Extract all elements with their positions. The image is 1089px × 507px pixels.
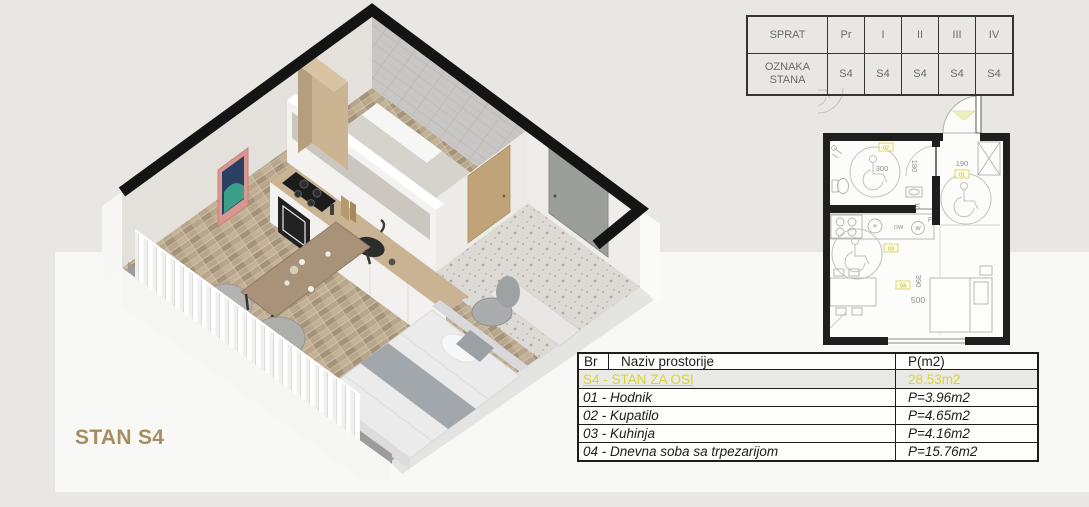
unit-cell: S4 — [975, 53, 1012, 94]
room-row: 01 - Hodnik P=3.96m2 — [579, 388, 1037, 406]
floor-col: II — [901, 17, 938, 53]
render-caption: STAN S4 — [75, 426, 164, 450]
areas-header-row: Br Naziv prostorije P(m2) — [579, 354, 1037, 369]
floor-col: I — [864, 17, 901, 53]
apartment-total-row: S4 - STAN ZA OSI 28.53m2 — [579, 369, 1037, 388]
svg-text:390: 390 — [914, 275, 923, 288]
svg-text:180: 180 — [910, 160, 919, 173]
room-area: P=15.76m2 — [895, 443, 1037, 460]
svg-text:10: 10 — [913, 202, 920, 210]
unit-cell: S4 — [864, 53, 901, 94]
room-row: 02 - Kupatilo P=4.65m2 — [579, 406, 1037, 424]
plan-entrance-door — [943, 95, 981, 133]
svg-text:300: 300 — [876, 164, 889, 173]
svg-text:01: 01 — [959, 173, 965, 179]
col-br: Br — [583, 354, 609, 369]
fridge-label: F — [928, 218, 932, 224]
room-area: P=4.65m2 — [895, 407, 1037, 424]
washer-label: W — [916, 226, 922, 232]
unit-cell: S4 — [901, 53, 938, 94]
room-name: 02 - Kupatilo — [579, 407, 895, 424]
apartment-total-area: 28.53m2 — [895, 370, 1037, 388]
floors-table-header: SPRAT — [748, 17, 827, 53]
svg-text:03: 03 — [888, 247, 894, 253]
room-area: P=4.16m2 — [895, 425, 1037, 442]
room-name: 01 - Hodnik — [579, 389, 895, 406]
svg-text:02: 02 — [883, 146, 889, 152]
unit-row-header: OZNAKA STANA — [748, 53, 827, 94]
apartment-name: S4 - STAN ZA OSI — [583, 372, 694, 387]
col-area: P(m2) — [895, 354, 1037, 369]
floors-table: SPRAT Pr I II III IV OZNAKA STANA S4 S4 … — [746, 15, 1014, 96]
room-area: P=3.96m2 — [895, 389, 1037, 406]
room-row: 03 - Kuhinja P=4.16m2 — [579, 424, 1037, 442]
svg-text:500: 500 — [911, 295, 925, 305]
room-name: 03 - Kuhinja — [579, 425, 895, 442]
room-row: 04 - Dnevna soba sa trpezarijom P=15.76m… — [579, 442, 1037, 460]
room-name: 04 - Dnevna soba sa trpezarijom — [579, 443, 895, 460]
floor-col: IV — [975, 17, 1012, 53]
apartment-3d-render — [40, 0, 660, 480]
col-room-name: Naziv prostorije — [609, 354, 714, 369]
dishwasher-label: DW — [894, 225, 904, 231]
room-areas-table: Br Naziv prostorije P(m2) S4 - STAN ZA O… — [577, 352, 1039, 462]
unit-cell: S4 — [827, 53, 864, 94]
svg-text:190: 190 — [956, 159, 969, 168]
unit-cell: S4 — [938, 53, 975, 94]
floor-col: Pr — [827, 17, 864, 53]
floor-col: III — [938, 17, 975, 53]
floorplan-2d: DW W F — [818, 88, 1068, 358]
svg-text:04: 04 — [900, 284, 906, 290]
